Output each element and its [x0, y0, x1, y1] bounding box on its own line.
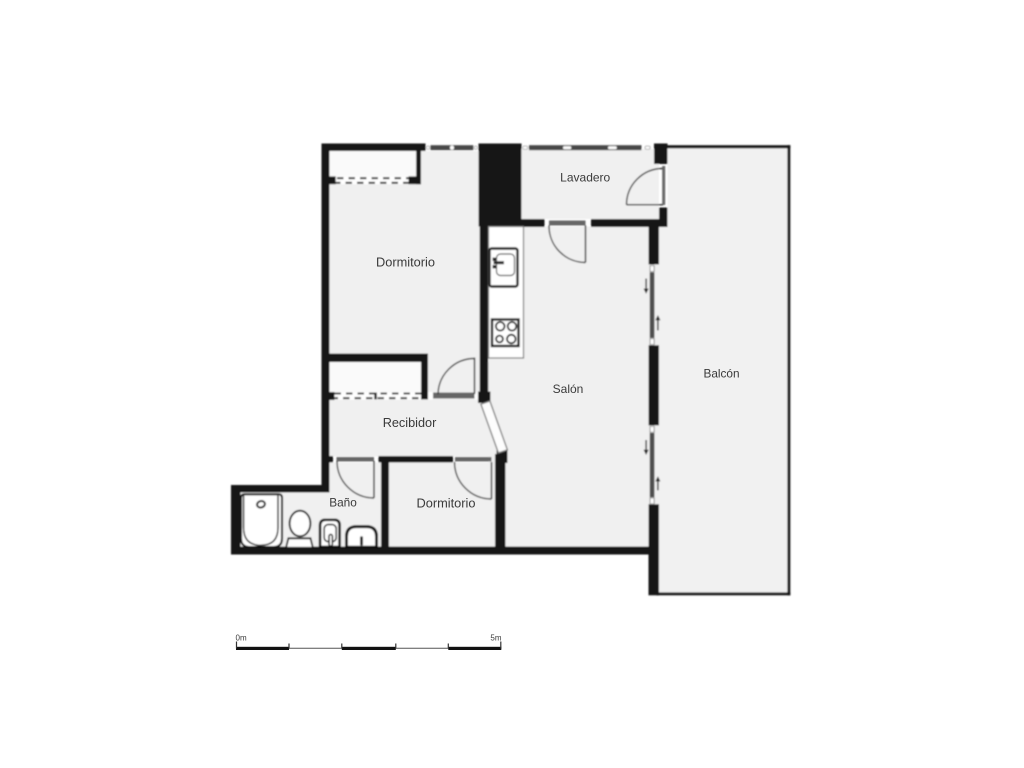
svg-text:Dormitorio: Dormitorio: [376, 254, 435, 269]
svg-text:Recibidor: Recibidor: [383, 416, 437, 430]
svg-text:0m: 0m: [236, 633, 247, 642]
svg-text:Salón: Salón: [553, 382, 584, 396]
svg-text:Baño: Baño: [329, 496, 357, 510]
svg-text:Dormitorio: Dormitorio: [416, 496, 475, 511]
svg-text:5m: 5m: [490, 633, 501, 642]
svg-text:Balcón: Balcón: [703, 367, 739, 381]
svg-text:Lavadero: Lavadero: [560, 171, 610, 185]
